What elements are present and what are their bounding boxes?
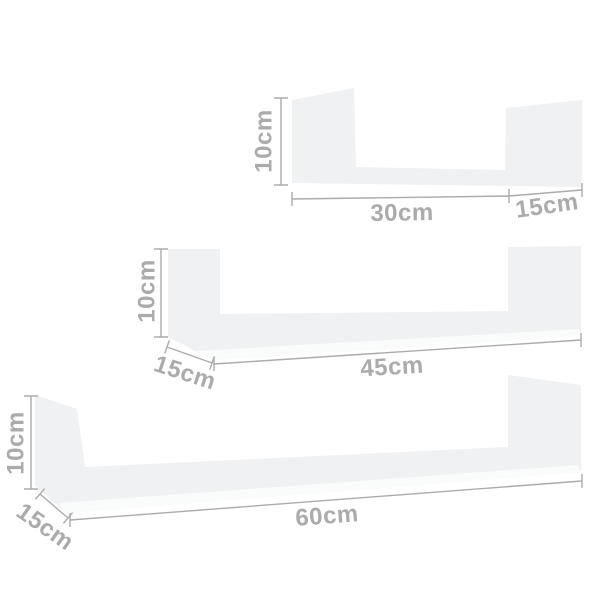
shelf-medium-width-label: 45cm xyxy=(360,352,425,383)
shelf-large: 10cm 15cm 60cm xyxy=(3,375,583,556)
shelf-small-height-label: 10cm xyxy=(251,109,278,172)
shelf-small-width-label: 30cm xyxy=(370,199,434,227)
shelf-large-height-label: 10cm xyxy=(3,411,30,474)
product-dimension-diagram: 10cm 30cm 15cm 10cm 15cm 45cm xyxy=(0,0,600,600)
shelf-small-depth-label: 15cm xyxy=(514,188,581,224)
shelf-large-width-label: 60cm xyxy=(294,500,359,532)
shelf-medium-height-label: 10cm xyxy=(134,259,161,322)
shelf-medium: 10cm 15cm 45cm xyxy=(134,246,582,396)
shelf-diagram-canvas: 10cm 30cm 15cm 10cm 15cm 45cm xyxy=(0,0,600,600)
shelf-small-body xyxy=(292,88,582,187)
shelf-small: 10cm 30cm 15cm xyxy=(251,88,583,227)
